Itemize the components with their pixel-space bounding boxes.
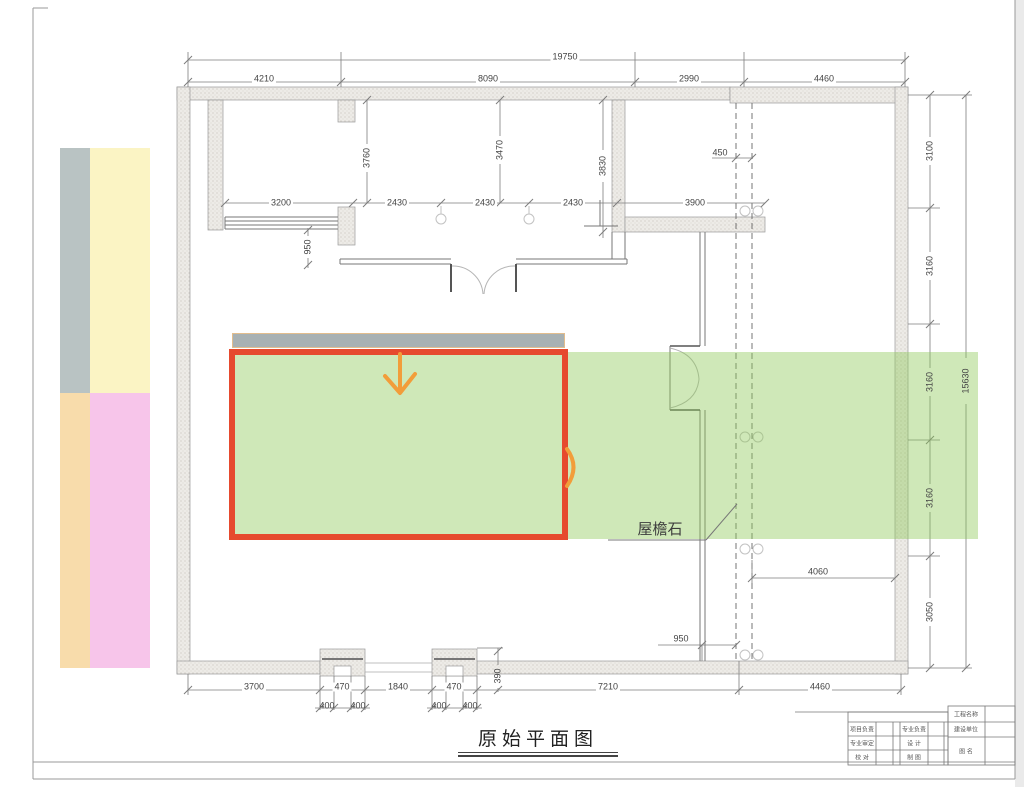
title-block-cell-label: 制 图 — [907, 753, 921, 762]
title-block-cell-label: 专业负责 — [902, 725, 926, 734]
title-block-cell-label: 设 计 — [907, 739, 921, 748]
dimension-label: 400 — [319, 702, 334, 711]
dimension-label: 3160 — [926, 372, 935, 392]
dimension-label: 3900 — [683, 199, 707, 208]
eave-stone-label: 屋檐石 — [612, 518, 708, 539]
dimension-label: 3830 — [599, 156, 608, 176]
dimension-label: 19750 — [550, 53, 579, 62]
dimension-label: 3700 — [242, 683, 266, 692]
dimension-label: 7210 — [596, 683, 620, 692]
dimension-label: 1840 — [386, 683, 410, 692]
dimension-label: 2430 — [473, 199, 497, 208]
title-block-cell-label: 专业审定 — [850, 739, 874, 748]
dimension-label: 470 — [332, 683, 351, 692]
dimension-label: 4460 — [808, 683, 832, 692]
dimension-label: 3760 — [363, 148, 372, 168]
drawing-page: 屋檐石 197504210809029904460320024302430243… — [0, 0, 1024, 787]
dimension-label: 4060 — [806, 568, 830, 577]
dimension-label: 15630 — [962, 368, 971, 393]
dimension-label: 400 — [462, 702, 477, 711]
title-block-cell-label: 项目负责 — [850, 725, 874, 734]
dimension-label: 950 — [304, 239, 313, 254]
dimension-label: 4210 — [252, 75, 276, 84]
dimension-label: 390 — [494, 668, 503, 683]
dimension-label: 3050 — [926, 602, 935, 622]
dimension-label: 3100 — [926, 141, 935, 161]
dimension-label: 3160 — [926, 256, 935, 276]
dimension-label: 400 — [431, 702, 446, 711]
title-block-cell-label: 建设单位 — [954, 725, 978, 734]
annotation-overlay — [0, 0, 1024, 787]
dimension-label: 400 — [350, 702, 365, 711]
plan-title: 原始平面图 — [458, 724, 618, 757]
title-block-cell-label: 工程名称 — [954, 710, 978, 719]
dimension-label: 450 — [710, 149, 729, 158]
title-block-cell-label: 图 名 — [959, 747, 973, 756]
dimension-label: 950 — [671, 635, 690, 644]
dimension-label: 2430 — [561, 199, 585, 208]
dimension-label: 4460 — [812, 75, 836, 84]
dimension-label: 3470 — [496, 140, 505, 160]
dimension-label: 3160 — [926, 488, 935, 508]
dimension-label: 3200 — [269, 199, 293, 208]
orange-arc — [567, 449, 574, 486]
dimension-label: 2430 — [385, 199, 409, 208]
dimension-label: 470 — [444, 683, 463, 692]
dimension-label: 8090 — [476, 75, 500, 84]
dimension-label: 2990 — [677, 75, 701, 84]
title-block-cell-label: 校 对 — [855, 753, 869, 762]
